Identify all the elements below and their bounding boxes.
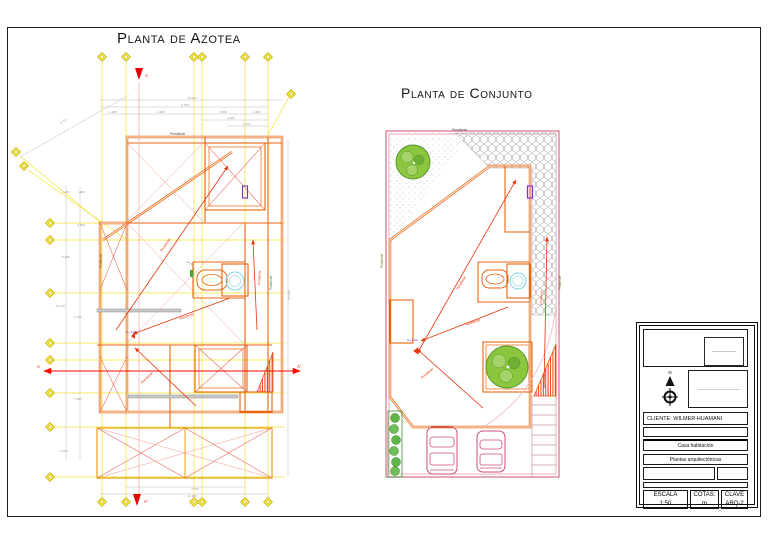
pendiente-label: Pendiente [539, 290, 544, 305]
key-label: CLAVE [722, 491, 747, 500]
project-row: Casa habitación [643, 439, 748, 451]
split-row-right [717, 467, 748, 480]
dim-label: 2.960 [219, 110, 227, 114]
empty-row [643, 427, 748, 437]
azotea-grid [20, 62, 289, 497]
grid-bubble-icon [198, 498, 207, 507]
thin-row [643, 482, 748, 488]
logo-section [643, 329, 748, 367]
dim-label: 4.730 [191, 487, 199, 491]
grid-bubble-icon [98, 53, 107, 62]
azotea-grid-bubbles [12, 53, 296, 507]
dim-label: 4.280 [157, 110, 165, 114]
dim-label: 6.721 [59, 117, 68, 124]
grid-bubble-icon [46, 339, 55, 348]
azotea-ramp-hatch [257, 352, 273, 392]
split-row-left [643, 467, 715, 480]
scale-cell: ESCALA 1:50 [643, 490, 688, 509]
drawing-sheet: Planta de Azotea Planta de Conjunto [0, 0, 768, 543]
grid-bubble-icon [241, 498, 250, 507]
logo-placeholder [704, 337, 744, 366]
car-1 [427, 427, 457, 474]
level-mark: N.+2.60 [126, 330, 137, 334]
dim-label: 8.730 [181, 103, 189, 107]
section-label: A' [144, 499, 148, 504]
section-label: A' [297, 364, 301, 369]
section-label: A [37, 364, 40, 369]
pendiente-label: Pendiente [269, 275, 273, 290]
hedge [388, 411, 402, 477]
grid-bubble-icon [122, 53, 131, 62]
pendiente-label: Pendiente [99, 253, 103, 268]
dim-label: 1.480 [62, 190, 70, 194]
dim-label: 10.475 [55, 304, 65, 308]
signature-box [688, 370, 748, 408]
azotea-arrows [116, 166, 257, 406]
units-value: m [691, 500, 718, 509]
dim-label: 1.180 [109, 110, 117, 114]
section-label: A [145, 73, 148, 78]
client-row: CLIENTE: WILMER HUAMANI [643, 412, 748, 425]
pendiente-label: Pendiente [558, 275, 562, 290]
level-mark: N.+2.60 [407, 338, 418, 342]
grid-bubble-icon [46, 389, 55, 398]
pendiente-label: Pendiente [452, 128, 467, 132]
pendiente-label: Pendiente [170, 132, 185, 136]
pendiente-label: Pendiente [179, 312, 195, 321]
dim-label: 2.337 [243, 122, 251, 126]
dim-label: 2.975 [60, 449, 68, 453]
grid-bubble-icon [241, 53, 250, 62]
dim-label: 2.680 [227, 116, 235, 120]
north-arrow-icon: N [661, 369, 679, 409]
units-label: COTAS: [691, 491, 718, 500]
conjunto-stairs [532, 395, 557, 477]
sheet-name-row: Plantas arquitectónicas [643, 454, 748, 465]
pendiente-label: Pendiente [420, 367, 434, 380]
key-cell: CLAVE ARQ-2 [721, 490, 748, 509]
car-2 [477, 431, 505, 472]
dim-label: 10.280 [187, 96, 197, 100]
tree-1 [396, 145, 430, 179]
grid-bubble-icon [46, 236, 55, 245]
grid-bubble-icon [12, 148, 21, 157]
grid-bubble-icon [46, 423, 55, 432]
grid-bubble-icon [46, 219, 55, 228]
tree-2 [486, 346, 528, 388]
grid-bubble-icon [264, 498, 273, 507]
scale-value: 1:50 [644, 500, 687, 509]
grid-bubble-icon [122, 498, 131, 507]
dim-label: 1.835 [74, 397, 82, 401]
grid-bubble-icon [287, 90, 296, 99]
dim-label: 20.350 [287, 290, 291, 300]
north-label: N [668, 370, 671, 375]
dim-label: 10.280 [187, 494, 197, 498]
dim-label: 2.045 [74, 315, 82, 319]
dim-label: 1.290 [77, 190, 85, 194]
grid-bubble-icon [198, 53, 207, 62]
key-value: ARQ-2 [722, 500, 747, 509]
scale-label: ESCALA [644, 491, 687, 500]
grid-bubble-icon [264, 53, 273, 62]
grid-bubble-icon [20, 162, 29, 171]
pendiente-label: Pendiente [140, 371, 154, 385]
pendiente-label: Pendiente [257, 270, 262, 285]
title-block: N CLIENTE: WILMER HUAMANI Casa habitació… [636, 322, 758, 508]
grid-bubble-icon [46, 356, 55, 365]
dim-label: 1.060 [253, 110, 261, 114]
pendiente-label: Pendiente [380, 253, 384, 268]
title-block-inner: N CLIENTE: WILMER HUAMANI Casa habitació… [639, 325, 755, 505]
grid-bubble-icon [46, 289, 55, 298]
section-marker-bottom [133, 494, 141, 506]
pendiente-label: Pendiente [465, 318, 481, 327]
grid-bubble-icon [46, 473, 55, 482]
section-marker-top [135, 68, 143, 80]
dim-label: 2.800 [77, 223, 85, 227]
grid-bubble-icon [98, 498, 107, 507]
units-cell: COTAS: m [690, 490, 719, 509]
dim-label: 5.080 [62, 255, 70, 259]
